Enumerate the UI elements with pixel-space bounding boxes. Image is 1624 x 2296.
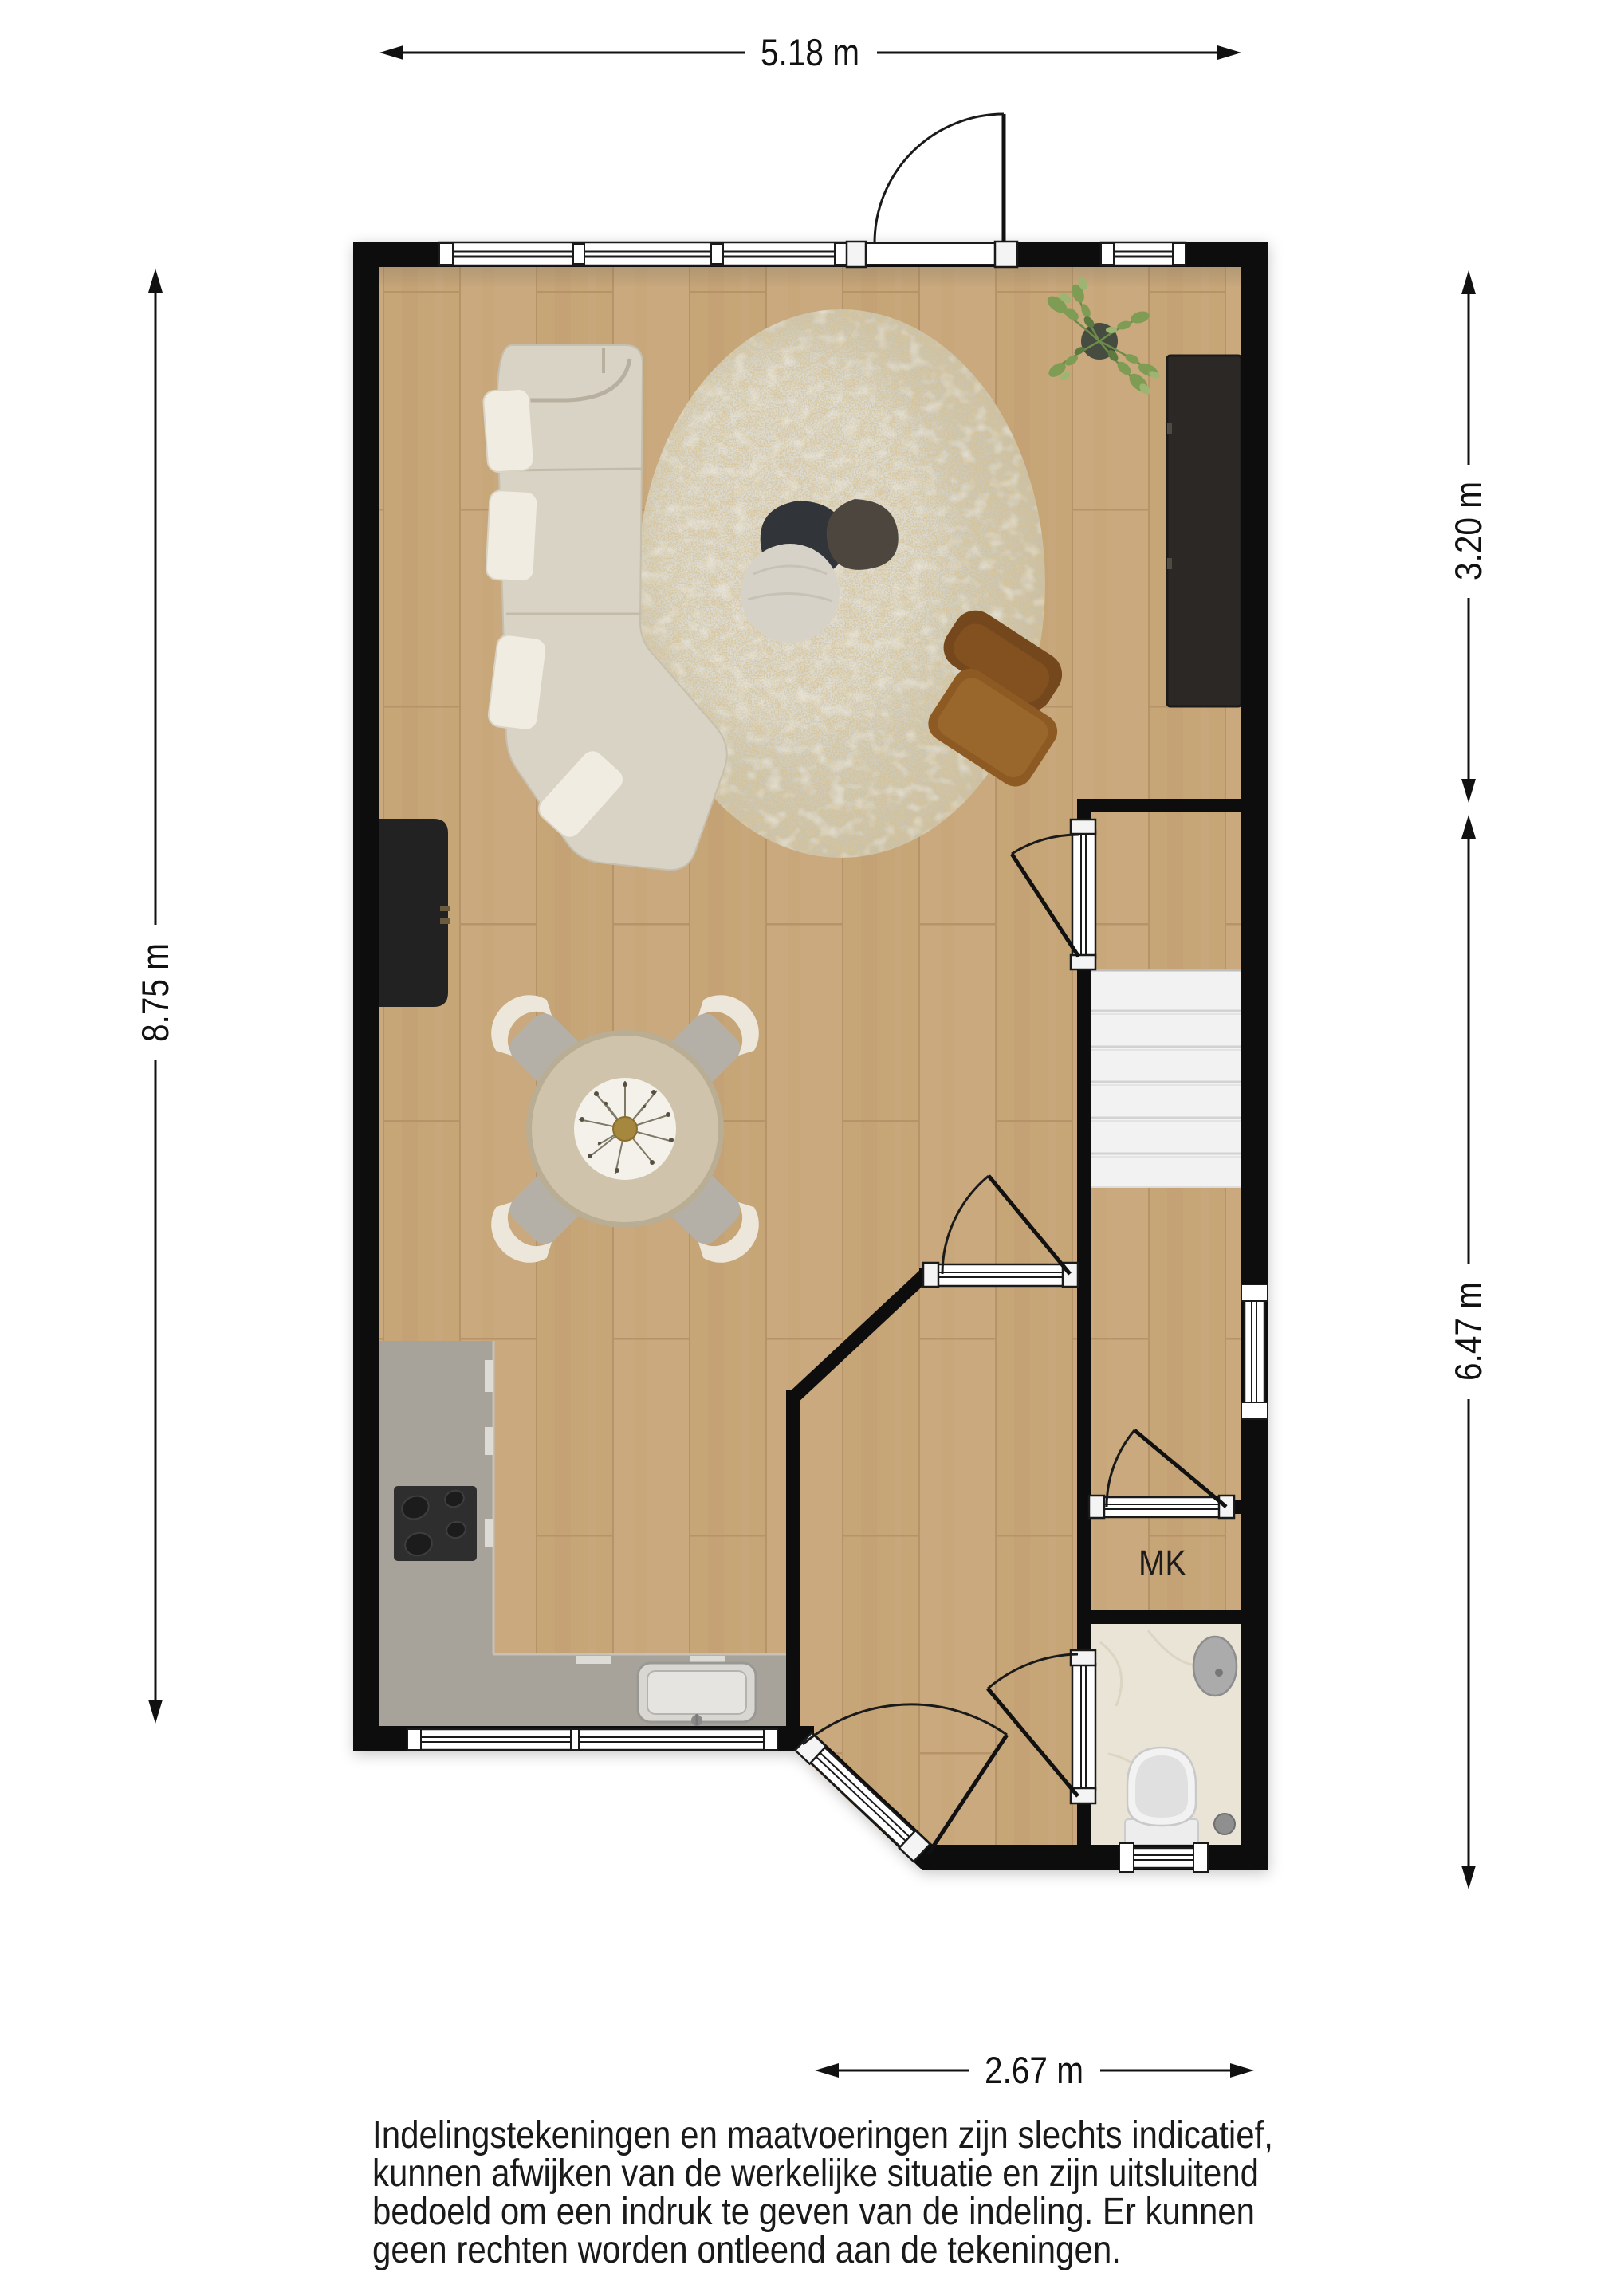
svg-text:bedoeld om een indruk te geven: bedoeld om een indruk te geven van de in… (372, 2191, 1255, 2233)
svg-text:MK: MK (1138, 1543, 1186, 1583)
svg-text:kunnen afwijken van de werkeli: kunnen afwijken van de werkelijke situat… (372, 2152, 1259, 2195)
svg-text:2.67 m: 2.67 m (985, 2049, 1083, 2091)
svg-text:geen rechten worden ontleend a: geen rechten worden ontleend aan de teke… (372, 2229, 1121, 2271)
svg-text:8.75 m: 8.75 m (134, 943, 176, 1042)
svg-text:5.18 m: 5.18 m (761, 31, 859, 73)
svg-text:6.47 m: 6.47 m (1447, 1282, 1489, 1381)
svg-text:3.20 m: 3.20 m (1447, 482, 1489, 580)
svg-text:Indelingstekeningen en maatvoe: Indelingstekeningen en maatvoeringen zij… (372, 2114, 1273, 2156)
